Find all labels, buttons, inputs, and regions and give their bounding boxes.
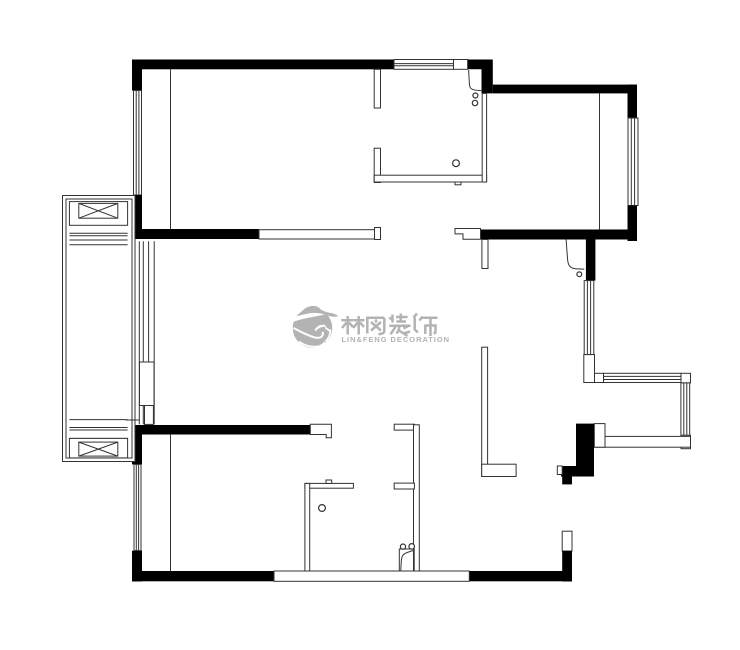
svg-text:LIN&FENG DECORATION: LIN&FENG DECORATION [342, 335, 451, 344]
